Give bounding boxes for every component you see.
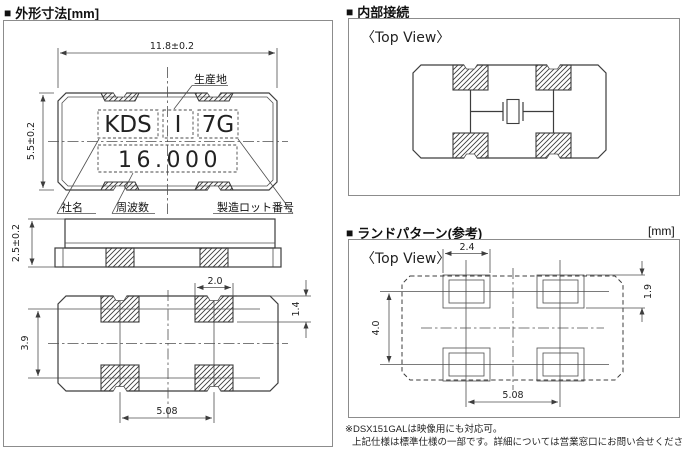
dim-land-width: 2.4 bbox=[459, 242, 474, 253]
bottom-view-drawing: 2.0 1.4 3.9 5.08 bbox=[20, 276, 311, 423]
marking-lot: 7G bbox=[202, 112, 234, 138]
land-unit-label: [mm] bbox=[648, 224, 675, 238]
internal-view-label: 〈Top View〉 bbox=[361, 30, 450, 46]
svg-text:生産地: 生産地 bbox=[194, 72, 227, 86]
dim-land-row-pitch: 4.0 bbox=[371, 320, 382, 335]
land-pattern-panel: 〈Top View〉 2.4 bbox=[348, 239, 680, 418]
callout-company: 社名 bbox=[57, 139, 99, 214]
svg-text:周波数: 周波数 bbox=[116, 201, 149, 214]
bullet-square-icon: ■ bbox=[4, 7, 11, 19]
marking-origin: I bbox=[175, 112, 182, 138]
side-view-drawing: 2.5±0.2 bbox=[11, 219, 281, 267]
top-view-drawing: 11.8±0.2 bbox=[26, 41, 294, 214]
datasheet-page: ■ 外形寸法[mm] 11.8±0.2 bbox=[0, 0, 683, 452]
svg-text:社名: 社名 bbox=[61, 200, 83, 214]
svg-text:製造ロット番号: 製造ロット番号 bbox=[217, 200, 294, 214]
dim-body-height: 5.5±0.2 bbox=[26, 122, 37, 160]
dim-land-col-pitch: 5.08 bbox=[502, 390, 523, 401]
outline-drawing: 11.8±0.2 bbox=[4, 21, 332, 446]
marking-company: KDS bbox=[104, 112, 151, 138]
dim-body-thickness: 2.5±0.2 bbox=[11, 224, 22, 262]
crystal-connection bbox=[471, 90, 554, 133]
dim-pad-height: 1.4 bbox=[291, 301, 302, 316]
internal-connection-drawing: 〈Top View〉 bbox=[349, 19, 679, 195]
land-pattern-drawing: 〈Top View〉 2.4 bbox=[349, 240, 679, 417]
outline-drawing-panel: 11.8±0.2 bbox=[3, 20, 333, 447]
callout-lot: 製造ロット番号 bbox=[213, 139, 294, 214]
callout-frequency: 周波数 bbox=[112, 173, 155, 214]
footnote-line2: 上記仕様は標準仕様の一部です。詳細については営業窓口にお問い合せください。 bbox=[345, 436, 683, 449]
dim-col-pitch: 5.08 bbox=[156, 406, 177, 417]
callout-origin: 生産地 bbox=[174, 72, 228, 109]
bullet-square-icon: ■ bbox=[346, 227, 353, 239]
internal-connection-panel: 〈Top View〉 bbox=[348, 18, 680, 196]
crystal-symbol bbox=[507, 100, 519, 124]
bullet-square-icon: ■ bbox=[346, 6, 353, 18]
marking-frequency: 16.000 bbox=[118, 148, 222, 173]
dim-pad-width: 2.0 bbox=[207, 276, 222, 287]
dim-land-height: 1.9 bbox=[643, 284, 654, 299]
land-view-label: 〈Top View〉 bbox=[361, 251, 450, 267]
dim-row-pitch: 3.9 bbox=[20, 335, 31, 350]
dim-body-width: 11.8±0.2 bbox=[150, 41, 194, 52]
footnote: ※DSX151GALは映像用にも対応可。 上記仕様は標準仕様の一部です。詳細につ… bbox=[345, 423, 683, 449]
footnote-line1: ※DSX151GALは映像用にも対応可。 bbox=[345, 423, 683, 436]
